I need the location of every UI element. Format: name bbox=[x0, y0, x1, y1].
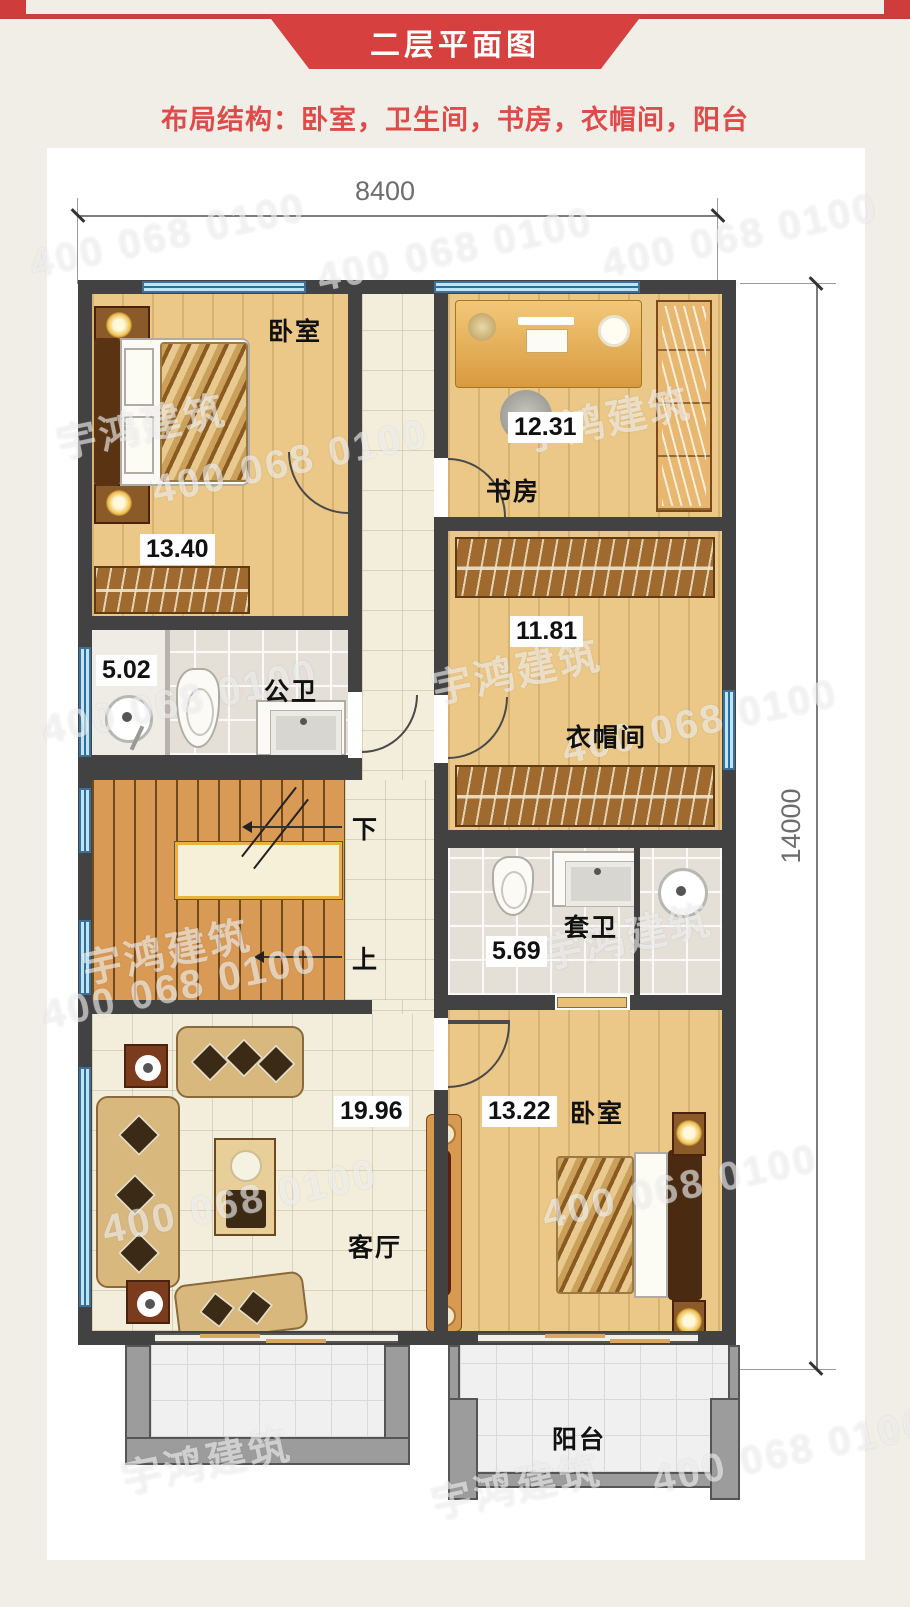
floorplan-page: 二层平面图 布局结构：卧室，卫生间，书房，衣帽间，阳台 8400 14000 下… bbox=[0, 0, 910, 1607]
wall bbox=[434, 294, 448, 458]
wall bbox=[448, 830, 736, 848]
cloakroom-label: 衣帽间 bbox=[566, 718, 647, 754]
faucet-icon bbox=[594, 868, 601, 875]
bed-icon bbox=[556, 1150, 702, 1300]
dimension-line-right bbox=[816, 284, 818, 1370]
terrace-floor bbox=[151, 1345, 384, 1437]
public-bath-area: 5.02 bbox=[96, 655, 157, 686]
wall bbox=[434, 1090, 448, 1331]
wall bbox=[78, 616, 348, 630]
coffee-table-icon bbox=[214, 1138, 276, 1236]
window bbox=[723, 690, 735, 770]
pillow bbox=[124, 416, 154, 474]
bedroom2-area: 13.22 bbox=[482, 1096, 557, 1127]
stair-landing bbox=[175, 842, 342, 899]
living-label: 客厅 bbox=[348, 1228, 402, 1264]
pillow bbox=[634, 1152, 668, 1298]
wall bbox=[434, 763, 448, 1018]
wardrobe-icon bbox=[455, 537, 715, 598]
wall bbox=[448, 517, 736, 531]
bed-icon bbox=[94, 338, 250, 486]
wall bbox=[348, 630, 362, 692]
dimension-height: 14000 bbox=[776, 761, 810, 891]
wall bbox=[448, 995, 555, 1010]
living-area: 19.96 bbox=[334, 1096, 409, 1127]
wall bbox=[348, 294, 362, 630]
bedroom1-label: 卧室 bbox=[268, 312, 322, 348]
wall bbox=[348, 758, 362, 780]
plant-icon bbox=[230, 1150, 262, 1182]
window bbox=[434, 281, 640, 293]
ensuite-area: 5.69 bbox=[486, 936, 547, 967]
lamp-icon bbox=[106, 312, 132, 338]
stair-down-label: 下 bbox=[352, 810, 379, 846]
desk-lamp-icon bbox=[598, 315, 630, 347]
cloakroom-area: 11.81 bbox=[510, 616, 583, 647]
stair-down-arrow bbox=[242, 821, 252, 833]
wall bbox=[434, 517, 448, 695]
balcony-label: 阳台 bbox=[552, 1420, 606, 1456]
window bbox=[79, 647, 91, 757]
faucet-icon bbox=[300, 718, 307, 725]
study-area: 12.31 bbox=[508, 412, 583, 443]
side-table bbox=[124, 1044, 168, 1088]
wall bbox=[722, 280, 736, 1345]
sink-vanity-icon bbox=[552, 851, 640, 907]
sink-vanity-icon bbox=[256, 700, 346, 756]
ensuite-label: 套卫 bbox=[564, 908, 618, 944]
bedroom2-label: 卧室 bbox=[570, 1094, 624, 1130]
sofa-icon bbox=[176, 1026, 304, 1098]
stair-up-label: 上 bbox=[352, 940, 379, 976]
desk-plant-icon bbox=[468, 313, 496, 341]
wall bbox=[92, 1000, 372, 1014]
dimension-line-top bbox=[78, 215, 718, 217]
dimension-width: 8400 bbox=[355, 176, 415, 207]
lamp-icon bbox=[676, 1120, 702, 1146]
blanket bbox=[160, 342, 248, 482]
balcony-pillar bbox=[448, 1398, 478, 1500]
window bbox=[79, 788, 91, 853]
wall bbox=[630, 995, 736, 1010]
wall bbox=[78, 755, 348, 780]
pillow bbox=[124, 348, 154, 406]
desk-icon bbox=[455, 300, 642, 388]
stair-up-arrow bbox=[254, 951, 264, 963]
desk-monitor-icon bbox=[526, 329, 568, 353]
side-table bbox=[126, 1280, 170, 1324]
title-ribbon: 二层平面图 bbox=[268, 15, 642, 69]
window bbox=[79, 920, 91, 995]
public-bath-label: 公卫 bbox=[264, 672, 318, 708]
study-label: 书房 bbox=[486, 472, 540, 508]
wardrobe-icon bbox=[94, 566, 250, 614]
balcony-pillar bbox=[710, 1398, 740, 1500]
wardrobe-icon bbox=[455, 765, 715, 827]
header-corner-left bbox=[0, 0, 26, 15]
sofa-icon bbox=[96, 1096, 180, 1288]
page-subtitle: 布局结构：卧室，卫生间，书房，衣帽间，阳台 bbox=[0, 98, 910, 137]
window bbox=[79, 1067, 91, 1307]
page-title: 二层平面图 bbox=[370, 20, 540, 64]
header-corner-right bbox=[884, 0, 910, 15]
lamp-icon bbox=[106, 490, 132, 516]
bookshelf-icon bbox=[656, 300, 712, 512]
door-leaf-ensuite bbox=[557, 997, 627, 1008]
blanket bbox=[556, 1156, 634, 1294]
bedroom1-area: 13.40 bbox=[140, 534, 215, 565]
window bbox=[142, 281, 306, 293]
